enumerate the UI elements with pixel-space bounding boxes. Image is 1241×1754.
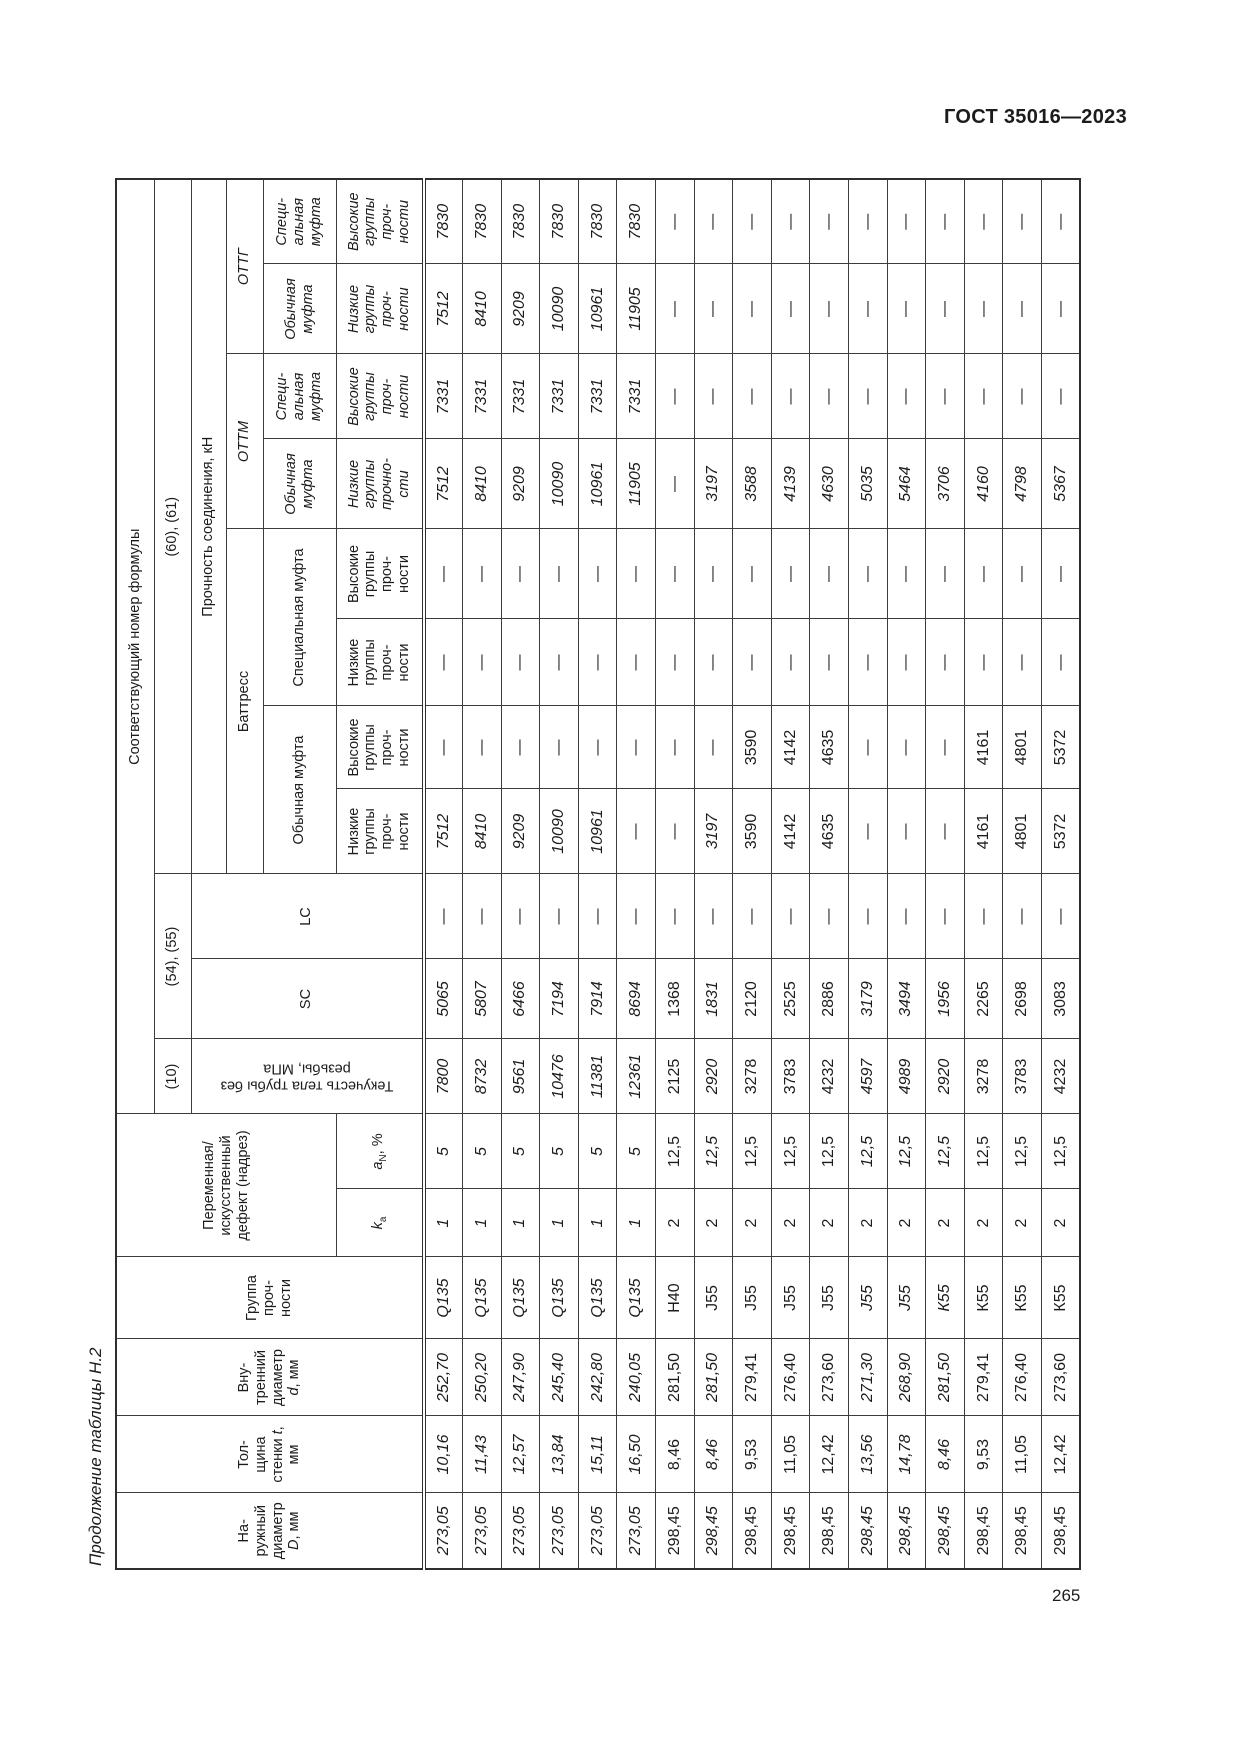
table-cell: — [964,354,1003,439]
table-cell: 3590 [733,706,772,789]
table-cell: — [926,264,965,354]
table-cell: — [540,529,579,619]
table-cell: — [463,529,502,619]
table-cell: 4635 [810,789,849,874]
table-cell: 4232 [810,1039,849,1114]
table-cell: — [887,619,926,706]
header-wall-thickness: Тол- щина стенки t, мм [116,1416,424,1493]
header-buttress-usual-low: Низкие группы проч- ности [336,789,424,874]
table-cell: — [926,354,965,439]
table-row: 298,459,53279,41К55212,532782265—4161416… [964,179,1003,1569]
document-page: { "page": { "header": "ГОСТ 35016—2023",… [0,0,1241,1754]
table-cell: 2120 [733,959,772,1039]
table-cell: — [964,874,1003,959]
table-cell: 2886 [810,959,849,1039]
table-cell: — [501,874,540,959]
table-cell: 16,50 [617,1416,656,1493]
table-row: 273,0515,11242,80Q13515113817914—10961——… [578,179,617,1569]
table-cell: — [694,354,733,439]
table-cell: 5807 [463,959,502,1039]
table-cell: — [694,179,733,264]
table-cell: 9,53 [964,1416,1003,1493]
table-row: 298,4511,05276,40К55212,537832698—480148… [1003,179,1042,1569]
table-cell: — [501,619,540,706]
table-row: 273,0513,84245,40Q13515104767194—10090——… [540,179,579,1569]
table-cell: — [1003,264,1042,354]
table-cell: J55 [849,1257,888,1339]
table-cell: 8410 [463,789,502,874]
table-cell: 7331 [578,354,617,439]
header-ottm-low: Низкие группы прочно- сти [336,439,424,529]
table-cell: 5 [424,1114,463,1189]
table-cell: 281,50 [926,1339,965,1416]
table-cell: 276,40 [1003,1339,1042,1416]
table-cell: 8410 [463,439,502,529]
table-cell: J55 [887,1257,926,1339]
table-cell: — [849,706,888,789]
table-cell: 10476 [540,1039,579,1114]
table-cell: 12,5 [694,1114,733,1189]
header-strength-grade: Группа проч- ности [116,1257,424,1339]
table-cell: 2 [964,1189,1003,1257]
table-cell: J55 [694,1257,733,1339]
table-cell: 13,56 [849,1416,888,1493]
table-cell: 13,84 [540,1416,579,1493]
table-cell: Q135 [501,1257,540,1339]
table-row: 273,0512,57247,90Q1351595616466—9209———9… [501,179,540,1569]
table-cell: — [887,179,926,264]
table-cell: 2525 [771,959,810,1039]
table-cell: — [849,874,888,959]
table-cell: 7331 [501,354,540,439]
table-cell: — [617,706,656,789]
table-cell: 9,53 [733,1416,772,1493]
table-cell: К55 [1003,1257,1042,1339]
table-cell: 1831 [694,959,733,1039]
table-cell: — [1003,529,1042,619]
table-row: 298,4514,78268,90J55212,549893494—————54… [887,179,926,1569]
table-cell: 12,5 [887,1114,926,1189]
table-cell: 3278 [964,1039,1003,1114]
table-cell: 2698 [1003,959,1042,1039]
table-cell: 4142 [771,789,810,874]
table-cell: 5065 [424,959,463,1039]
table-cell: — [810,179,849,264]
table-cell: 4142 [771,706,810,789]
header-defect-group: Переменная/ искусственный дефект (надрез… [116,1114,336,1257]
table-cell: — [1003,354,1042,439]
table-cell: — [849,529,888,619]
table-cell: — [694,874,733,959]
table-cell: 2 [849,1189,888,1257]
table-cell: 10961 [578,264,617,354]
table-cell: 5035 [849,439,888,529]
table-cell: 9209 [501,789,540,874]
table-cell: 1 [578,1189,617,1257]
table-cell: 8,46 [694,1416,733,1493]
table-row: 298,459,53279,41J55212,532782120—3590359… [733,179,772,1569]
table-cell: 247,90 [501,1339,540,1416]
table-cell: 4232 [1042,1039,1081,1114]
table-cell: 3706 [926,439,965,529]
table-cell: 3179 [849,959,888,1039]
table-cell: — [771,529,810,619]
table-cell: — [463,706,502,789]
table-cell: — [964,179,1003,264]
table-cell: 3083 [1042,959,1081,1039]
table-cell: 273,60 [810,1339,849,1416]
header-ottm-high: Высокие группы проч- ности [336,354,424,439]
table-cell: — [656,706,695,789]
table-cell: 5372 [1042,789,1081,874]
table-cell: — [771,264,810,354]
table-cell: 6466 [501,959,540,1039]
table-cell: — [424,529,463,619]
table-cell: 7830 [424,179,463,264]
table-cell: 12,5 [810,1114,849,1189]
table-cell: — [733,179,772,264]
table-cell: 2 [733,1189,772,1257]
header-ottg-special-coupling: Специ- альная муфта [263,179,336,264]
header-buttress-usual-high: Высокие группы проч- ности [336,706,424,789]
table-row: 298,458,46281,50К55212,529201956—————370… [926,179,965,1569]
header-joint-strength: Прочность соединения, кН [191,179,226,874]
table-cell: J55 [771,1257,810,1339]
table-cell: К55 [926,1257,965,1339]
table-cell: 8732 [463,1039,502,1114]
table-cell: 11,05 [771,1416,810,1493]
table-cell: — [463,874,502,959]
table-cell: — [501,529,540,619]
table-cell: 298,45 [1003,1493,1042,1569]
table-cell: 1 [424,1189,463,1257]
table-cell: Q135 [578,1257,617,1339]
table-cell: 2 [887,1189,926,1257]
table-cell: 7331 [463,354,502,439]
table-cell: 271,30 [849,1339,888,1416]
table-cell: 298,45 [656,1493,695,1569]
table-row: 298,458,46281,50Н40212,521251368————————… [656,179,695,1569]
table-cell: 298,45 [733,1493,772,1569]
table-cell: — [887,264,926,354]
table-cell: 8410 [463,264,502,354]
table-cell: 4139 [771,439,810,529]
header-buttress-special-coupling: Специальная муфта [263,529,336,706]
header-body-yield: Текучесть тела трубы без резьбы, МПа [191,1039,424,1114]
table-cell: 4798 [1003,439,1042,529]
header-buttress: Баттресс [226,529,263,874]
table-cell: — [501,706,540,789]
header-an: aN, % [336,1114,424,1189]
table-cell: — [810,264,849,354]
table-cell: 268,90 [887,1339,926,1416]
table-cell: 2 [810,1189,849,1257]
header-ka: ka [336,1189,424,1257]
table-cell: — [926,529,965,619]
table-cell: 2125 [656,1039,695,1114]
table-cell: Н40 [656,1257,695,1339]
table-cell: — [617,529,656,619]
table-cell: — [578,874,617,959]
table-cell: J55 [810,1257,849,1339]
table-cell: 1 [463,1189,502,1257]
table-cell: 12,5 [964,1114,1003,1189]
header-formula-60-61: (60), (61) [154,179,191,874]
table-continuation-title: Продолжение таблицы Н.2 [86,1348,106,1567]
table-cell: — [656,874,695,959]
table-row: 298,4512,42273,60J55212,542322886—463546… [810,179,849,1569]
table-cell: 279,41 [733,1339,772,1416]
table-cell: 4160 [964,439,1003,529]
header-ottg: ОТТГ [226,179,263,354]
table-cell: 12,5 [926,1114,965,1189]
header-buttress-special-low: Низкие группы проч- ности [336,619,424,706]
table-cell: 2 [1003,1189,1042,1257]
table-row: 298,458,46281,50J55212,529201831—3197———… [694,179,733,1569]
table-cell: 7830 [501,179,540,264]
table-cell: 298,45 [771,1493,810,1569]
header-formula-54-55: (54), (55) [154,874,191,1039]
table-cell: 10961 [578,789,617,874]
table-cell: 298,45 [887,1493,926,1569]
table-cell: 2 [1042,1189,1081,1257]
table-cell: — [617,789,656,874]
table-cell: 11381 [578,1039,617,1114]
table-cell: — [849,619,888,706]
table-cell: 2 [694,1189,733,1257]
table-cell: 4630 [810,439,849,529]
table-cell: — [887,706,926,789]
table-cell: — [887,529,926,619]
table-cell: — [733,529,772,619]
table-cell: Q135 [424,1257,463,1339]
continuation-table: На- ружный диаметр D, мм Тол- щина стенк… [115,178,1081,1570]
table-cell: 11905 [617,264,656,354]
table-cell: — [926,874,965,959]
header-ottm-special-coupling: Специ- альная муфта [263,354,336,439]
header-ottm-usual-coupling: Обычная муфта [263,439,336,529]
header-buttress-usual-coupling: Обычная муфта [263,706,336,874]
table-cell: 273,05 [578,1493,617,1569]
table-cell: 7512 [424,264,463,354]
table-cell: 2920 [926,1039,965,1114]
table-cell: 10961 [578,439,617,529]
table-cell: 9209 [501,439,540,529]
table-cell: 9209 [501,264,540,354]
table-cell: — [810,619,849,706]
table-cell: — [926,179,965,264]
table-cell: — [887,354,926,439]
table-cell: 12,5 [1042,1114,1081,1189]
table-cell: — [733,354,772,439]
table-cell: — [1042,619,1081,706]
table-cell: — [694,619,733,706]
table-cell: 1956 [926,959,965,1039]
table-cell: 7331 [617,354,656,439]
table-cell: 12,5 [733,1114,772,1189]
table-cell: 240,05 [617,1339,656,1416]
table-cell: — [424,706,463,789]
table-body: 273,0510,16252,70Q1351578005065—7512———7… [424,179,1080,1569]
table-cell: 7800 [424,1039,463,1114]
table-cell: 273,05 [463,1493,502,1569]
table-cell: 8,46 [926,1416,965,1493]
table-cell: 7830 [463,179,502,264]
table-cell: — [617,874,656,959]
table-cell: 252,70 [424,1339,463,1416]
table-cell: 11,43 [463,1416,502,1493]
table-cell: 7331 [424,354,463,439]
table-cell: 1 [617,1189,656,1257]
table-cell: 7914 [578,959,617,1039]
table-cell: 7194 [540,959,579,1039]
table-cell: 7830 [540,179,579,264]
table-cell: 3494 [887,959,926,1039]
table-cell: — [771,354,810,439]
table-cell: 281,50 [694,1339,733,1416]
header-lc: LC [191,874,424,959]
table-cell: 3197 [694,789,733,874]
table-cell: 3783 [1003,1039,1042,1114]
table-cell: 15,11 [578,1416,617,1493]
table-cell: 298,45 [694,1493,733,1569]
table-cell: 12,5 [771,1114,810,1189]
header-buttress-special-high: Высокие группы проч- ности [336,529,424,619]
table-cell: 4597 [849,1039,888,1114]
header-ottg-high: Высокие группы проч- ности [336,179,424,264]
table-cell: — [424,874,463,959]
table-cell: 298,45 [926,1493,965,1569]
table-cell: — [1042,179,1081,264]
table-cell: 8694 [617,959,656,1039]
table-cell: 9561 [501,1039,540,1114]
table-cell: 12,57 [501,1416,540,1493]
table-cell: 4801 [1003,706,1042,789]
table-cell: 10,16 [424,1416,463,1493]
table-cell: 273,05 [424,1493,463,1569]
table-cell: — [578,619,617,706]
table-cell: 5 [617,1114,656,1189]
table-cell: 3278 [733,1039,772,1114]
table-row: 298,4513,56271,30J55212,545973179—————50… [849,179,888,1569]
table-cell: — [1042,354,1081,439]
table-cell: 273,05 [501,1493,540,1569]
header-ottm: ОТТМ [226,354,263,529]
table-cell: — [926,789,965,874]
table-cell: 5372 [1042,706,1081,789]
table-cell: 273,60 [1042,1339,1081,1416]
table-cell: — [849,789,888,874]
table-cell: 10090 [540,789,579,874]
table-cell: — [926,619,965,706]
table-cell: 281,50 [656,1339,695,1416]
table-cell: 4989 [887,1039,926,1114]
table-cell: 298,45 [849,1493,888,1569]
table-cell: 2 [926,1189,965,1257]
table-cell: — [1042,874,1081,959]
header-outer-diameter: На- ружный диаметр D, мм [116,1493,424,1569]
table-cell: — [656,439,695,529]
table-cell: 242,80 [578,1339,617,1416]
table-cell: 2920 [694,1039,733,1114]
header-ottg-low: Низкие группы проч- ности [336,264,424,354]
table-cell: — [733,619,772,706]
table-cell: 12,42 [1042,1416,1081,1493]
header-ottg-usual-coupling: Обычная муфта [263,264,336,354]
table-cell: 5 [501,1114,540,1189]
table-row: 273,0516,50240,05Q13515123618694—————119… [617,179,656,1569]
table-cell: J55 [733,1257,772,1339]
table-cell: Q135 [617,1257,656,1339]
table-cell: — [964,619,1003,706]
table-cell: 298,45 [810,1493,849,1569]
header-inner-diameter: Вну- тренний диаметр d, мм [116,1339,424,1416]
table-cell: 7512 [424,789,463,874]
table-cell: 12,5 [1003,1114,1042,1189]
table-cell: 11905 [617,439,656,529]
table-cell: 5 [540,1114,579,1189]
table-cell: 7512 [424,439,463,529]
header-formula-group: Соответствующий номер формулы [116,179,154,1114]
table-cell: 273,05 [617,1493,656,1569]
table-cell: — [463,619,502,706]
table-cell: 3590 [733,789,772,874]
table-cell: — [771,619,810,706]
table-cell: — [849,354,888,439]
table-cell: 5 [463,1114,502,1189]
table-cell: 1368 [656,959,695,1039]
table-cell: 4801 [1003,789,1042,874]
table-cell: 7830 [578,179,617,264]
table-cell: Q135 [463,1257,502,1339]
table-cell: — [578,706,617,789]
table-cell: 14,78 [887,1416,926,1493]
table-cell: — [656,354,695,439]
table-cell: 11,05 [1003,1416,1042,1493]
table-cell: — [656,529,695,619]
table-cell: 279,41 [964,1339,1003,1416]
table-cell: 298,45 [964,1493,1003,1569]
table-cell: 10090 [540,264,579,354]
standard-number-header: ГОСТ 35016—2023 [944,106,1127,129]
table-cell: 3783 [771,1039,810,1114]
table-cell: — [849,264,888,354]
table-cell: 245,40 [540,1339,579,1416]
table-cell: — [849,179,888,264]
header-formula-10: (10) [154,1039,191,1114]
table-cell: — [617,619,656,706]
table-cell: 2 [656,1189,695,1257]
table-cell: — [771,179,810,264]
table-cell: 10090 [540,439,579,529]
table-cell: — [1003,874,1042,959]
table-cell: 4161 [964,706,1003,789]
table-cell: — [1003,179,1042,264]
table-cell: — [887,874,926,959]
table-cell: 3588 [733,439,772,529]
table-row: 273,0510,16252,70Q1351578005065—7512———7… [424,179,463,1569]
table-cell: 276,40 [771,1339,810,1416]
table-cell: К55 [964,1257,1003,1339]
table-cell: 2265 [964,959,1003,1039]
table-row: 273,0511,43250,20Q1351587325807—8410———8… [463,179,502,1569]
table-cell: 4635 [810,706,849,789]
table-cell: — [926,706,965,789]
table-cell: 5 [578,1114,617,1189]
table-row: 298,4512,42273,60К55212,542323083—537253… [1042,179,1081,1569]
table-cell: — [540,706,579,789]
table-cell: 12,42 [810,1416,849,1493]
